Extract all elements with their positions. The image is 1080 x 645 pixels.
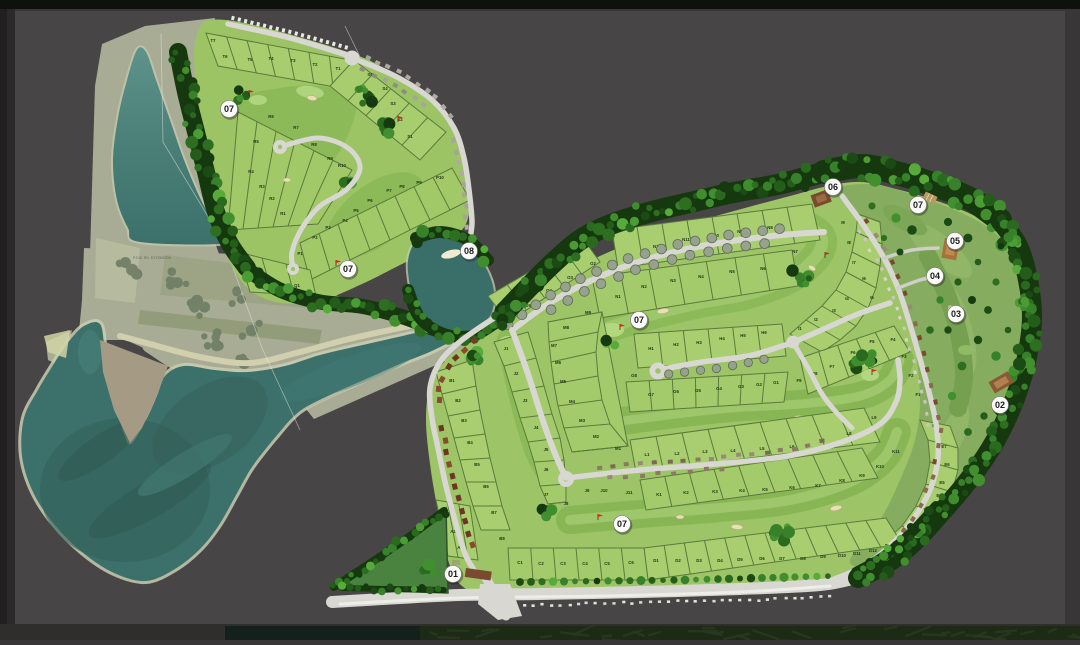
svg-text:H3: H3 xyxy=(696,340,702,345)
svg-text:T5: T5 xyxy=(247,57,253,62)
svg-text:07: 07 xyxy=(634,315,644,325)
svg-text:F4: F4 xyxy=(890,337,896,342)
svg-text:G2: G2 xyxy=(756,382,762,387)
svg-text:06: 06 xyxy=(828,182,838,192)
svg-text:P9: P9 xyxy=(416,180,422,185)
svg-text:J2: J2 xyxy=(514,371,519,376)
svg-text:J4: J4 xyxy=(534,425,539,430)
svg-text:G7: G7 xyxy=(648,392,654,397)
svg-text:Q1: Q1 xyxy=(294,283,300,288)
svg-text:K9: K9 xyxy=(859,473,865,478)
svg-text:P10: P10 xyxy=(436,175,444,180)
svg-text:M2: M2 xyxy=(593,434,600,439)
svg-text:R3: R3 xyxy=(259,184,265,189)
svg-text:M1: M1 xyxy=(615,446,622,451)
svg-text:K2: K2 xyxy=(683,490,689,495)
svg-text:P4: P4 xyxy=(342,218,348,223)
svg-text:P7: P7 xyxy=(386,188,392,193)
svg-text:M8: M8 xyxy=(563,325,570,330)
svg-text:I4: I4 xyxy=(845,296,849,301)
svg-text:K8: K8 xyxy=(839,478,845,483)
svg-text:J1: J1 xyxy=(504,346,509,351)
svg-text:P3: P3 xyxy=(325,225,331,230)
svg-text:R6: R6 xyxy=(268,114,274,119)
svg-text:F6: F6 xyxy=(850,350,856,355)
svg-text:R8: R8 xyxy=(311,142,317,147)
svg-text:N3: N3 xyxy=(670,278,676,283)
svg-text:D8: D8 xyxy=(800,556,806,561)
svg-text:P6: P6 xyxy=(367,198,373,203)
svg-text:D12: D12 xyxy=(869,548,877,553)
svg-text:D3: D3 xyxy=(696,558,702,563)
svg-text:B6: B6 xyxy=(483,484,489,489)
svg-text:J7: J7 xyxy=(544,492,549,497)
svg-text:H1: H1 xyxy=(648,346,654,351)
svg-text:S1: S1 xyxy=(407,134,413,139)
svg-text:K5: K5 xyxy=(762,487,768,492)
svg-text:N4: N4 xyxy=(698,274,704,279)
svg-text:07: 07 xyxy=(224,104,234,114)
svg-text:D9: D9 xyxy=(820,554,826,559)
svg-text:B5: B5 xyxy=(474,462,480,467)
svg-text:04: 04 xyxy=(930,271,940,281)
svg-text:I2: I2 xyxy=(814,317,818,322)
svg-text:N5: N5 xyxy=(729,269,735,274)
svg-text:T3: T3 xyxy=(290,58,296,63)
svg-text:R2: R2 xyxy=(269,196,275,201)
svg-text:B1: B1 xyxy=(449,378,455,383)
svg-text:R7: R7 xyxy=(293,125,299,130)
svg-text:K10: K10 xyxy=(876,464,884,469)
svg-text:J11: J11 xyxy=(626,490,634,495)
svg-text:H6: H6 xyxy=(761,330,767,335)
svg-text:L4: L4 xyxy=(730,448,736,453)
svg-text:G8: G8 xyxy=(631,373,637,378)
svg-text:I5: I5 xyxy=(870,295,874,300)
svg-text:D4: D4 xyxy=(717,558,723,563)
svg-text:C1: C1 xyxy=(517,560,523,565)
svg-text:G4: G4 xyxy=(716,386,722,391)
svg-text:M6: M6 xyxy=(555,360,562,365)
svg-text:R1: R1 xyxy=(280,211,286,216)
svg-text:G6: G6 xyxy=(673,389,679,394)
svg-text:L9: L9 xyxy=(871,415,877,420)
svg-text:K4: K4 xyxy=(739,488,745,493)
svg-text:B3: B3 xyxy=(461,418,467,423)
svg-text:R10: R10 xyxy=(338,163,346,168)
svg-text:G3: G3 xyxy=(738,384,744,389)
svg-text:D2: D2 xyxy=(675,558,681,563)
svg-text:P5: P5 xyxy=(353,208,359,213)
svg-text:B8: B8 xyxy=(499,536,505,541)
svg-text:B7: B7 xyxy=(491,510,497,515)
svg-text:I9: I9 xyxy=(841,220,845,225)
svg-text:G5: G5 xyxy=(695,388,701,393)
svg-text:C4: C4 xyxy=(582,561,588,566)
svg-text:P8: P8 xyxy=(399,184,405,189)
svg-text:H2: H2 xyxy=(673,342,679,347)
svg-text:C2: C2 xyxy=(538,561,544,566)
svg-text:K7: K7 xyxy=(815,483,821,488)
svg-text:M5: M5 xyxy=(560,379,567,384)
svg-text:08: 08 xyxy=(464,246,474,256)
svg-text:B2: B2 xyxy=(455,398,461,403)
svg-text:F5: F5 xyxy=(869,339,875,344)
svg-text:07: 07 xyxy=(913,200,923,210)
svg-text:03: 03 xyxy=(951,309,961,319)
svg-text:I7: I7 xyxy=(852,260,856,265)
svg-text:O3: O3 xyxy=(567,275,573,280)
svg-text:N8: N8 xyxy=(767,225,773,230)
svg-text:L3: L3 xyxy=(702,449,708,454)
svg-text:T6: T6 xyxy=(222,54,228,59)
svg-text:E7: E7 xyxy=(941,444,947,449)
svg-text:N2: N2 xyxy=(641,284,647,289)
svg-text:D1: D1 xyxy=(653,558,659,563)
svg-text:N11: N11 xyxy=(682,237,690,242)
svg-text:T1: T1 xyxy=(335,66,341,71)
svg-text:C5: C5 xyxy=(604,561,610,566)
svg-text:M3: M3 xyxy=(579,418,586,423)
svg-text:O2: O2 xyxy=(590,261,596,266)
svg-text:G1: G1 xyxy=(773,380,779,385)
svg-text:01: 01 xyxy=(448,569,458,579)
svg-text:J6: J6 xyxy=(544,467,549,472)
svg-text:J8: J8 xyxy=(564,501,569,506)
svg-text:L5: L5 xyxy=(759,446,765,451)
svg-text:F2: F2 xyxy=(908,373,914,378)
svg-text:D7: D7 xyxy=(779,556,785,561)
svg-text:D6: D6 xyxy=(759,556,765,561)
svg-text:D11: D11 xyxy=(853,551,861,556)
svg-text:N1: N1 xyxy=(615,294,621,299)
svg-text:P.O.B. RD. EXTENSION: P.O.B. RD. EXTENSION xyxy=(133,256,172,260)
svg-text:F7: F7 xyxy=(829,364,835,369)
svg-text:H4: H4 xyxy=(719,336,725,341)
svg-text:I1: I1 xyxy=(798,326,802,331)
svg-text:K11: K11 xyxy=(892,449,900,454)
svg-text:M4: M4 xyxy=(569,399,576,404)
svg-text:R9: R9 xyxy=(327,156,333,161)
svg-text:T7: T7 xyxy=(210,38,216,43)
svg-text:J3: J3 xyxy=(523,398,528,403)
svg-text:L8: L8 xyxy=(846,431,852,436)
svg-text:N7: N7 xyxy=(792,249,798,254)
svg-text:P1: P1 xyxy=(297,251,303,256)
svg-text:R5: R5 xyxy=(253,139,259,144)
svg-text:N6: N6 xyxy=(760,266,766,271)
svg-text:B4: B4 xyxy=(467,440,473,445)
svg-text:S4: S4 xyxy=(382,86,388,91)
svg-text:H5: H5 xyxy=(740,333,746,338)
svg-text:L2: L2 xyxy=(674,451,680,456)
svg-text:C3: C3 xyxy=(560,561,566,566)
svg-text:R4: R4 xyxy=(248,169,254,174)
svg-text:T2: T2 xyxy=(312,62,318,67)
svg-text:I6: I6 xyxy=(862,276,866,281)
svg-text:I3: I3 xyxy=(832,308,836,313)
svg-text:07: 07 xyxy=(343,264,353,274)
svg-text:J9: J9 xyxy=(585,488,590,493)
svg-text:T4: T4 xyxy=(268,56,274,61)
svg-text:D5: D5 xyxy=(737,557,743,562)
svg-text:S3: S3 xyxy=(390,101,396,106)
svg-text:I8: I8 xyxy=(847,240,851,245)
svg-text:02: 02 xyxy=(995,400,1005,410)
svg-text:D10: D10 xyxy=(838,553,846,558)
svg-text:07: 07 xyxy=(617,519,627,529)
svg-text:J10: J10 xyxy=(600,488,608,493)
svg-text:P2: P2 xyxy=(312,235,318,240)
svg-text:F1: F1 xyxy=(915,392,921,397)
svg-text:M9: M9 xyxy=(585,310,592,315)
svg-text:E5: E5 xyxy=(939,480,945,485)
svg-text:F3: F3 xyxy=(901,354,907,359)
svg-text:C6: C6 xyxy=(628,560,634,565)
svg-text:E6: E6 xyxy=(944,462,950,467)
svg-text:K3: K3 xyxy=(712,489,718,494)
svg-text:K1: K1 xyxy=(656,492,662,497)
svg-text:L1: L1 xyxy=(644,452,650,457)
svg-text:J5: J5 xyxy=(544,447,549,452)
svg-text:M7: M7 xyxy=(551,343,558,348)
svg-text:05: 05 xyxy=(950,236,960,246)
svg-text:F9: F9 xyxy=(796,378,802,383)
svg-text:K6: K6 xyxy=(789,485,795,490)
